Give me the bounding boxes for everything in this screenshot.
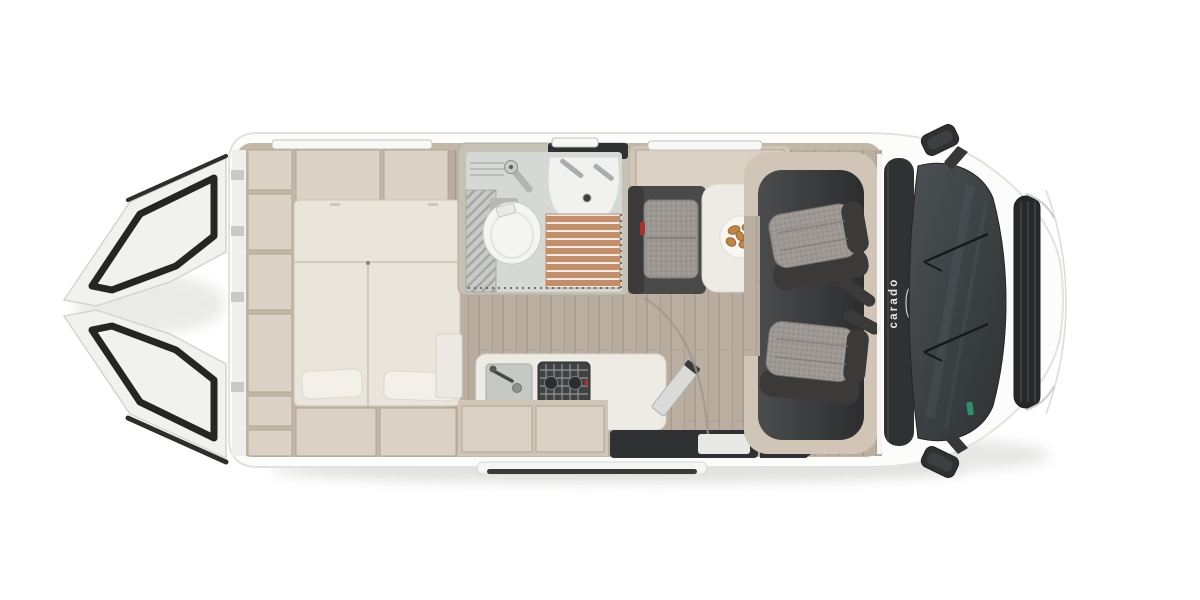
rear-door-bottom bbox=[64, 310, 226, 462]
bathroom bbox=[458, 143, 630, 295]
windshield bbox=[909, 163, 1006, 440]
rear-door-frame bbox=[231, 150, 246, 456]
overhead-shelves-top bbox=[296, 150, 448, 204]
sliding-door-rail bbox=[477, 462, 707, 474]
wardrobe-shelves-left bbox=[248, 150, 292, 456]
bench-seat bbox=[628, 186, 706, 294]
gas-hob bbox=[538, 362, 590, 404]
bedroom bbox=[248, 150, 460, 456]
entry-step bbox=[698, 434, 750, 454]
roof-window bbox=[552, 138, 598, 147]
front-grille bbox=[1014, 196, 1040, 408]
tall-cabinet bbox=[436, 334, 462, 398]
svg-text:carado: carado bbox=[888, 278, 900, 329]
shower-floor bbox=[546, 214, 620, 288]
rear-bed bbox=[294, 200, 460, 406]
campervan-floorplan-image: carado bbox=[0, 0, 1200, 600]
seatbelt-buckle bbox=[640, 222, 645, 235]
driver-seat bbox=[758, 320, 869, 406]
pillow bbox=[301, 368, 362, 399]
roof-window bbox=[648, 141, 762, 150]
roof-window bbox=[272, 140, 432, 149]
cab bbox=[744, 152, 882, 454]
storage-shelves-bottom bbox=[296, 408, 456, 456]
floorplan-canvas: carado bbox=[0, 0, 1200, 600]
kitchen-sink bbox=[486, 364, 532, 402]
kitchen-lower-shelves bbox=[458, 400, 608, 456]
cab-exterior: carado bbox=[877, 122, 1066, 480]
